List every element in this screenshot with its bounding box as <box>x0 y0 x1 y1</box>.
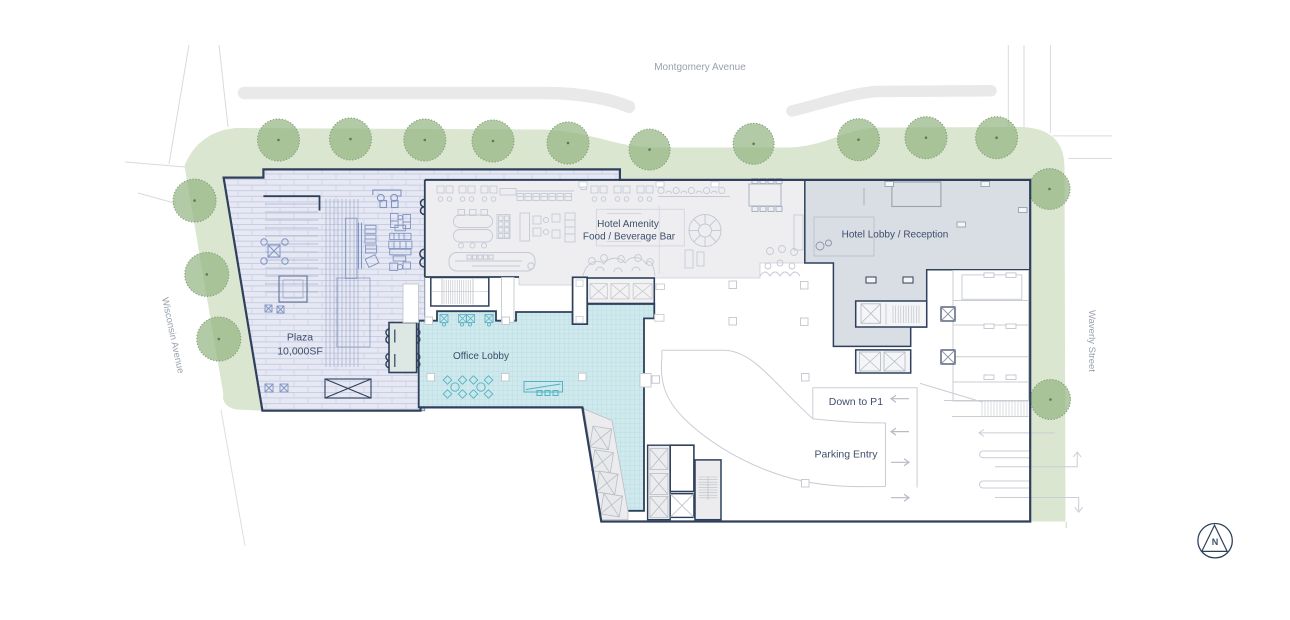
svg-text:Waverly Street: Waverly Street <box>1086 310 1097 372</box>
svg-text:10,000SF: 10,000SF <box>277 346 323 358</box>
svg-text:Food / Beverage Bar: Food / Beverage Bar <box>583 232 676 243</box>
svg-text:Parking Entry: Parking Entry <box>814 449 878 461</box>
svg-text:Hotel Lobby / Reception: Hotel Lobby / Reception <box>842 230 949 241</box>
svg-text:N: N <box>1212 537 1219 547</box>
svg-text:Hotel Amenity: Hotel Amenity <box>597 219 659 230</box>
svg-text:Plaza: Plaza <box>287 332 313 344</box>
svg-text:Down to P1: Down to P1 <box>829 396 883 408</box>
svg-text:Montgomery Avenue: Montgomery Avenue <box>654 62 746 73</box>
svg-text:Office Lobby: Office Lobby <box>453 351 509 362</box>
